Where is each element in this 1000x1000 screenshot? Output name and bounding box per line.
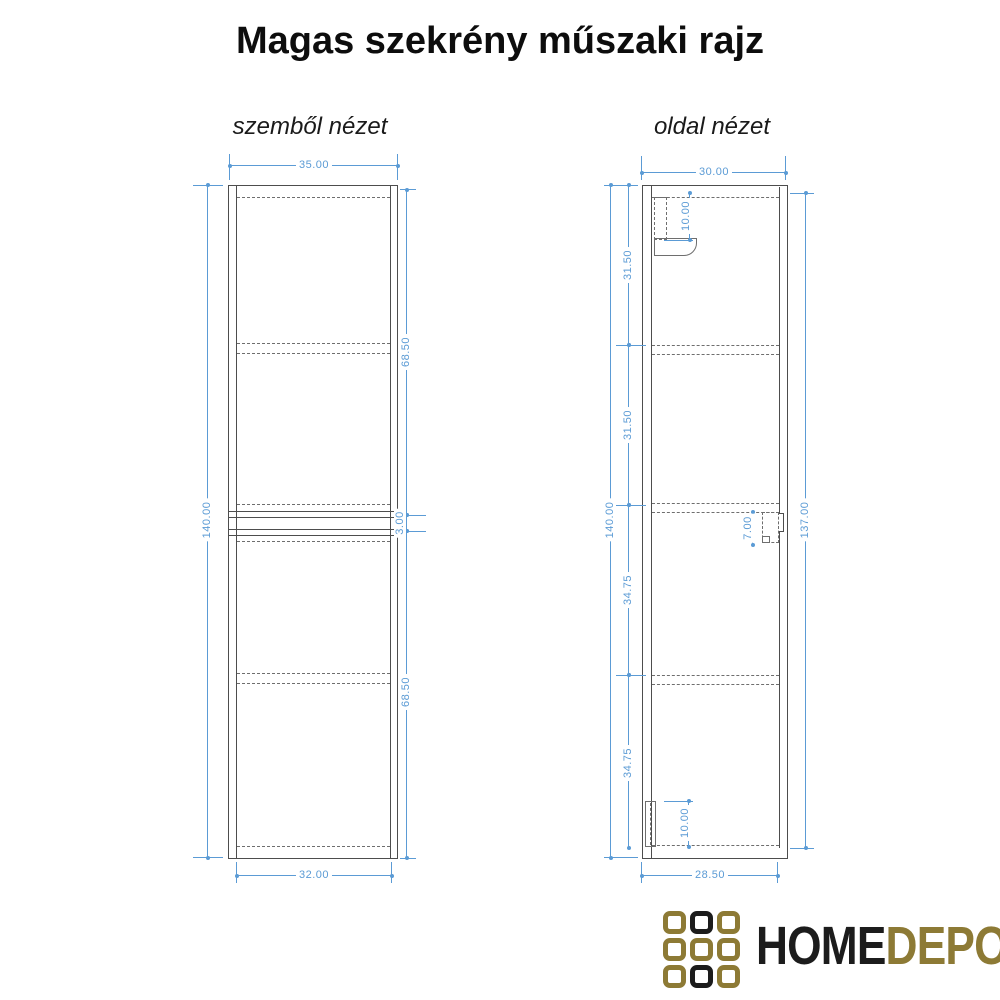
front-view-label: szemből nézet — [233, 113, 388, 141]
dimension-side-handle: 7.00 — [742, 513, 754, 542]
technical-drawing-page: Magas szekrény műszaki rajz szemből néze… — [0, 0, 1000, 1000]
dimension-side-front-height: 137.00 — [799, 499, 811, 542]
extension-line — [790, 848, 814, 849]
front-door1-bottom-edge — [229, 511, 397, 518]
front-left-wall-line — [236, 186, 237, 858]
side-top-hanger-strip — [654, 197, 667, 240]
side-door-notch-line — [783, 513, 784, 532]
extension-line — [777, 862, 778, 883]
front-top-panel-line — [237, 197, 390, 198]
side-shelf-1 — [652, 345, 779, 355]
extension-line — [604, 185, 638, 186]
logo-square — [717, 911, 740, 934]
extension-line — [641, 862, 642, 883]
extension-line — [400, 189, 416, 190]
side-front-wall-upper — [779, 187, 780, 513]
dimension-front-bottom-width: 32.00 — [296, 869, 332, 881]
front-door1-inner-line — [237, 504, 390, 505]
dimension-front-door-gap: 3.00 — [394, 508, 406, 537]
logo-text-home: HOME — [756, 916, 886, 976]
side-bottom-panel-line — [652, 845, 779, 846]
extension-line — [664, 801, 693, 802]
dimension-side-top-depth: 30.00 — [696, 166, 732, 178]
extension-line — [391, 862, 392, 883]
logo-grid-row — [663, 938, 740, 961]
front-shelf-lower — [237, 673, 390, 684]
logo-wordmark: HOMEDEPO — [756, 919, 1000, 973]
front-right-wall-line — [390, 186, 391, 858]
logo-grid — [663, 911, 740, 988]
side-top-panel-line — [652, 197, 779, 198]
extension-line — [193, 185, 223, 186]
extension-line — [229, 154, 230, 180]
dimension-front-top-width: 35.00 — [296, 159, 332, 171]
front-door2-top-edge — [229, 529, 397, 536]
dimension-side-section3: 34.75 — [622, 572, 634, 608]
extension-line — [616, 345, 646, 346]
extension-line — [641, 156, 642, 180]
logo-square — [690, 938, 713, 961]
dimension-front-height: 140.00 — [201, 499, 213, 542]
front-shelf-upper — [237, 343, 390, 354]
extension-line — [397, 154, 398, 180]
side-front-wall-lower — [779, 532, 780, 848]
extension-line — [616, 675, 646, 676]
front-cabinet-outline — [228, 185, 398, 859]
logo-square — [717, 938, 740, 961]
dimension-side-section2: 31.50 — [622, 407, 634, 443]
logo-grid-row — [663, 965, 740, 988]
dimension-side-bottom-fitting: 10.00 — [679, 805, 691, 841]
side-shelf-2 — [652, 503, 779, 513]
extension-line — [664, 240, 693, 241]
dimension-side-top-fitting: 10.00 — [680, 198, 692, 234]
side-door-notch-top — [779, 513, 784, 514]
side-door-notch-bottom — [779, 531, 784, 532]
extension-line — [604, 857, 638, 858]
page-title: Magas szekrény műszaki rajz — [0, 20, 1000, 63]
logo-square — [663, 965, 686, 988]
logo-square — [690, 965, 713, 988]
side-view-label: oldal nézet — [654, 113, 770, 141]
front-door2-inner-line — [237, 541, 390, 542]
dimension-side-section1: 31.50 — [622, 247, 634, 283]
extension-line — [193, 857, 223, 858]
side-back-wall-line — [651, 186, 652, 858]
extension-line — [616, 505, 646, 506]
logo-grid-row — [663, 911, 740, 934]
logo-square — [690, 911, 713, 934]
extension-line — [785, 156, 786, 180]
dimension-side-section4: 34.75 — [622, 745, 634, 781]
side-bottom-fitting-inner-line — [650, 803, 651, 845]
dimension-front-lower-door: 68.50 — [400, 674, 412, 710]
front-bottom-panel-line — [237, 846, 390, 847]
extension-line — [400, 858, 416, 859]
extension-line — [236, 862, 237, 883]
extension-line — [790, 193, 814, 194]
logo-text-depo: DEPO — [886, 916, 1000, 976]
logo-square — [663, 938, 686, 961]
side-shelf-3 — [652, 675, 779, 685]
dimension-side-height: 140.00 — [604, 499, 616, 542]
side-handle-notch — [762, 536, 770, 543]
logo-square — [717, 965, 740, 988]
logo-square — [663, 911, 686, 934]
dimension-side-bottom-depth: 28.50 — [692, 869, 728, 881]
dimension-front-upper-door: 68.50 — [400, 334, 412, 370]
